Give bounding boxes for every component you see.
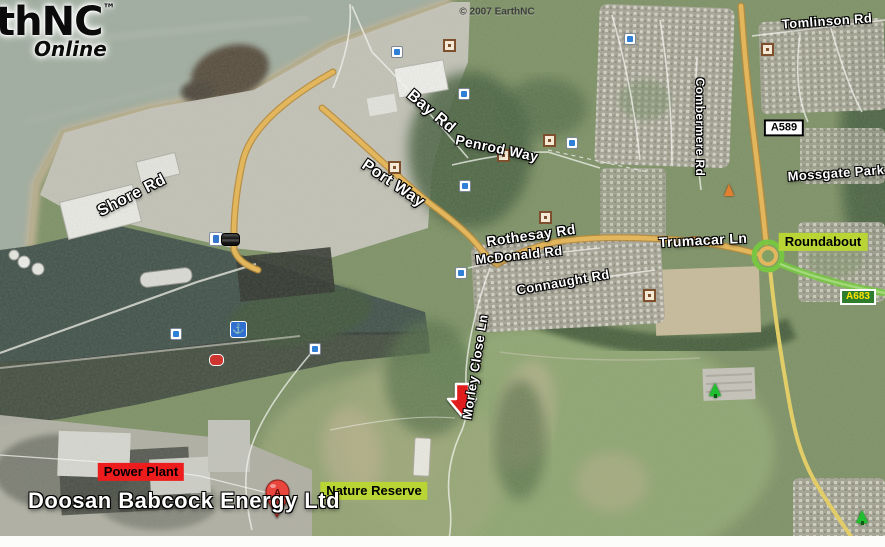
waypoint-square-icon[interactable] xyxy=(539,211,552,224)
roundabout-label: Roundabout xyxy=(779,233,868,251)
tree-icon[interactable] xyxy=(709,383,721,396)
map-canvas[interactable]: A ⚓ Shore Rd Bay Rd Port Way Penrod Way … xyxy=(0,0,885,547)
info-marker-icon[interactable] xyxy=(566,137,578,149)
services-icon[interactable] xyxy=(209,354,224,366)
waypoint-square-icon[interactable] xyxy=(443,39,456,52)
marina-anchor-icon[interactable]: ⚓ xyxy=(230,321,247,338)
car-icon[interactable] xyxy=(221,233,240,246)
waypoint-square-icon[interactable] xyxy=(543,134,556,147)
copyright-notice: © 2007 EarthNC xyxy=(459,7,534,18)
waypoint-square-icon[interactable] xyxy=(761,43,774,56)
road-label-combermere-rd: Combermere Rd xyxy=(693,78,707,177)
info-marker-icon[interactable] xyxy=(458,88,470,100)
route-shield-a589: A589 xyxy=(764,119,804,136)
info-marker-icon[interactable] xyxy=(309,343,321,355)
info-marker-icon[interactable] xyxy=(170,328,182,340)
anchor-glyph: ⚓ xyxy=(232,324,244,335)
trademark-symbol: ™ xyxy=(102,2,115,17)
power-plant-label: Power Plant xyxy=(98,463,184,481)
logo-subtext: Online xyxy=(34,40,115,58)
mast-icon[interactable] xyxy=(724,184,734,196)
tree-icon[interactable] xyxy=(856,510,868,523)
company-name-label: Doosan Babcock Energy Ltd xyxy=(28,488,340,514)
info-marker-icon[interactable] xyxy=(624,33,636,45)
earthnc-logo: thNC™ Online xyxy=(0,4,115,58)
info-marker-icon[interactable] xyxy=(459,180,471,192)
waypoint-square-icon[interactable] xyxy=(643,289,656,302)
info-marker-icon[interactable] xyxy=(391,46,403,58)
info-marker-icon[interactable] xyxy=(455,267,467,279)
image-bottom-edge xyxy=(0,536,885,547)
route-shield-a683: A683 xyxy=(840,289,876,305)
